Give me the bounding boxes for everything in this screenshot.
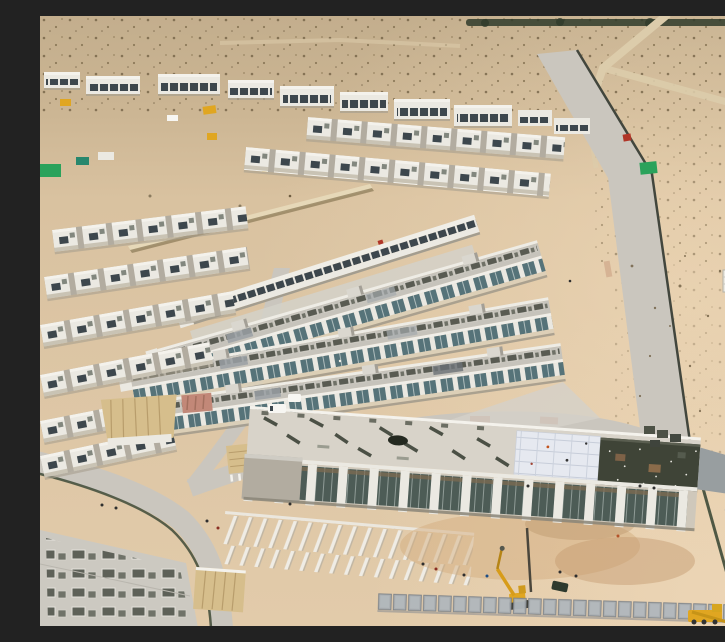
villa-slab [228,80,274,100]
villa-slab [394,99,450,121]
villa-slab [518,110,552,126]
villa-slab [454,105,512,128]
worker [115,507,118,510]
tan-canopy [101,394,180,446]
white-pickup [288,394,301,402]
green-container [639,161,657,175]
villa-slab [280,86,334,108]
white-trailer [98,152,114,160]
teal-container [76,157,89,165]
villa-slab [340,92,388,113]
aerial-photo: Aerial drone view of a desert residentia… [40,16,725,626]
pink-debris-pile [181,393,212,414]
tan-canopy [193,567,246,612]
green-container [40,164,61,177]
villa-slab [158,74,220,96]
villa-slab [86,76,140,96]
yellow-digger [207,133,217,140]
bright-panel-roof [514,431,601,481]
yellow-loader [60,99,71,106]
red-marker [623,133,632,141]
end-wall [697,448,725,494]
villa-slab [44,72,80,90]
worker [101,504,104,507]
villa-slab [554,118,590,134]
crate [648,464,661,473]
crate [615,454,625,462]
white-truck [167,115,178,121]
